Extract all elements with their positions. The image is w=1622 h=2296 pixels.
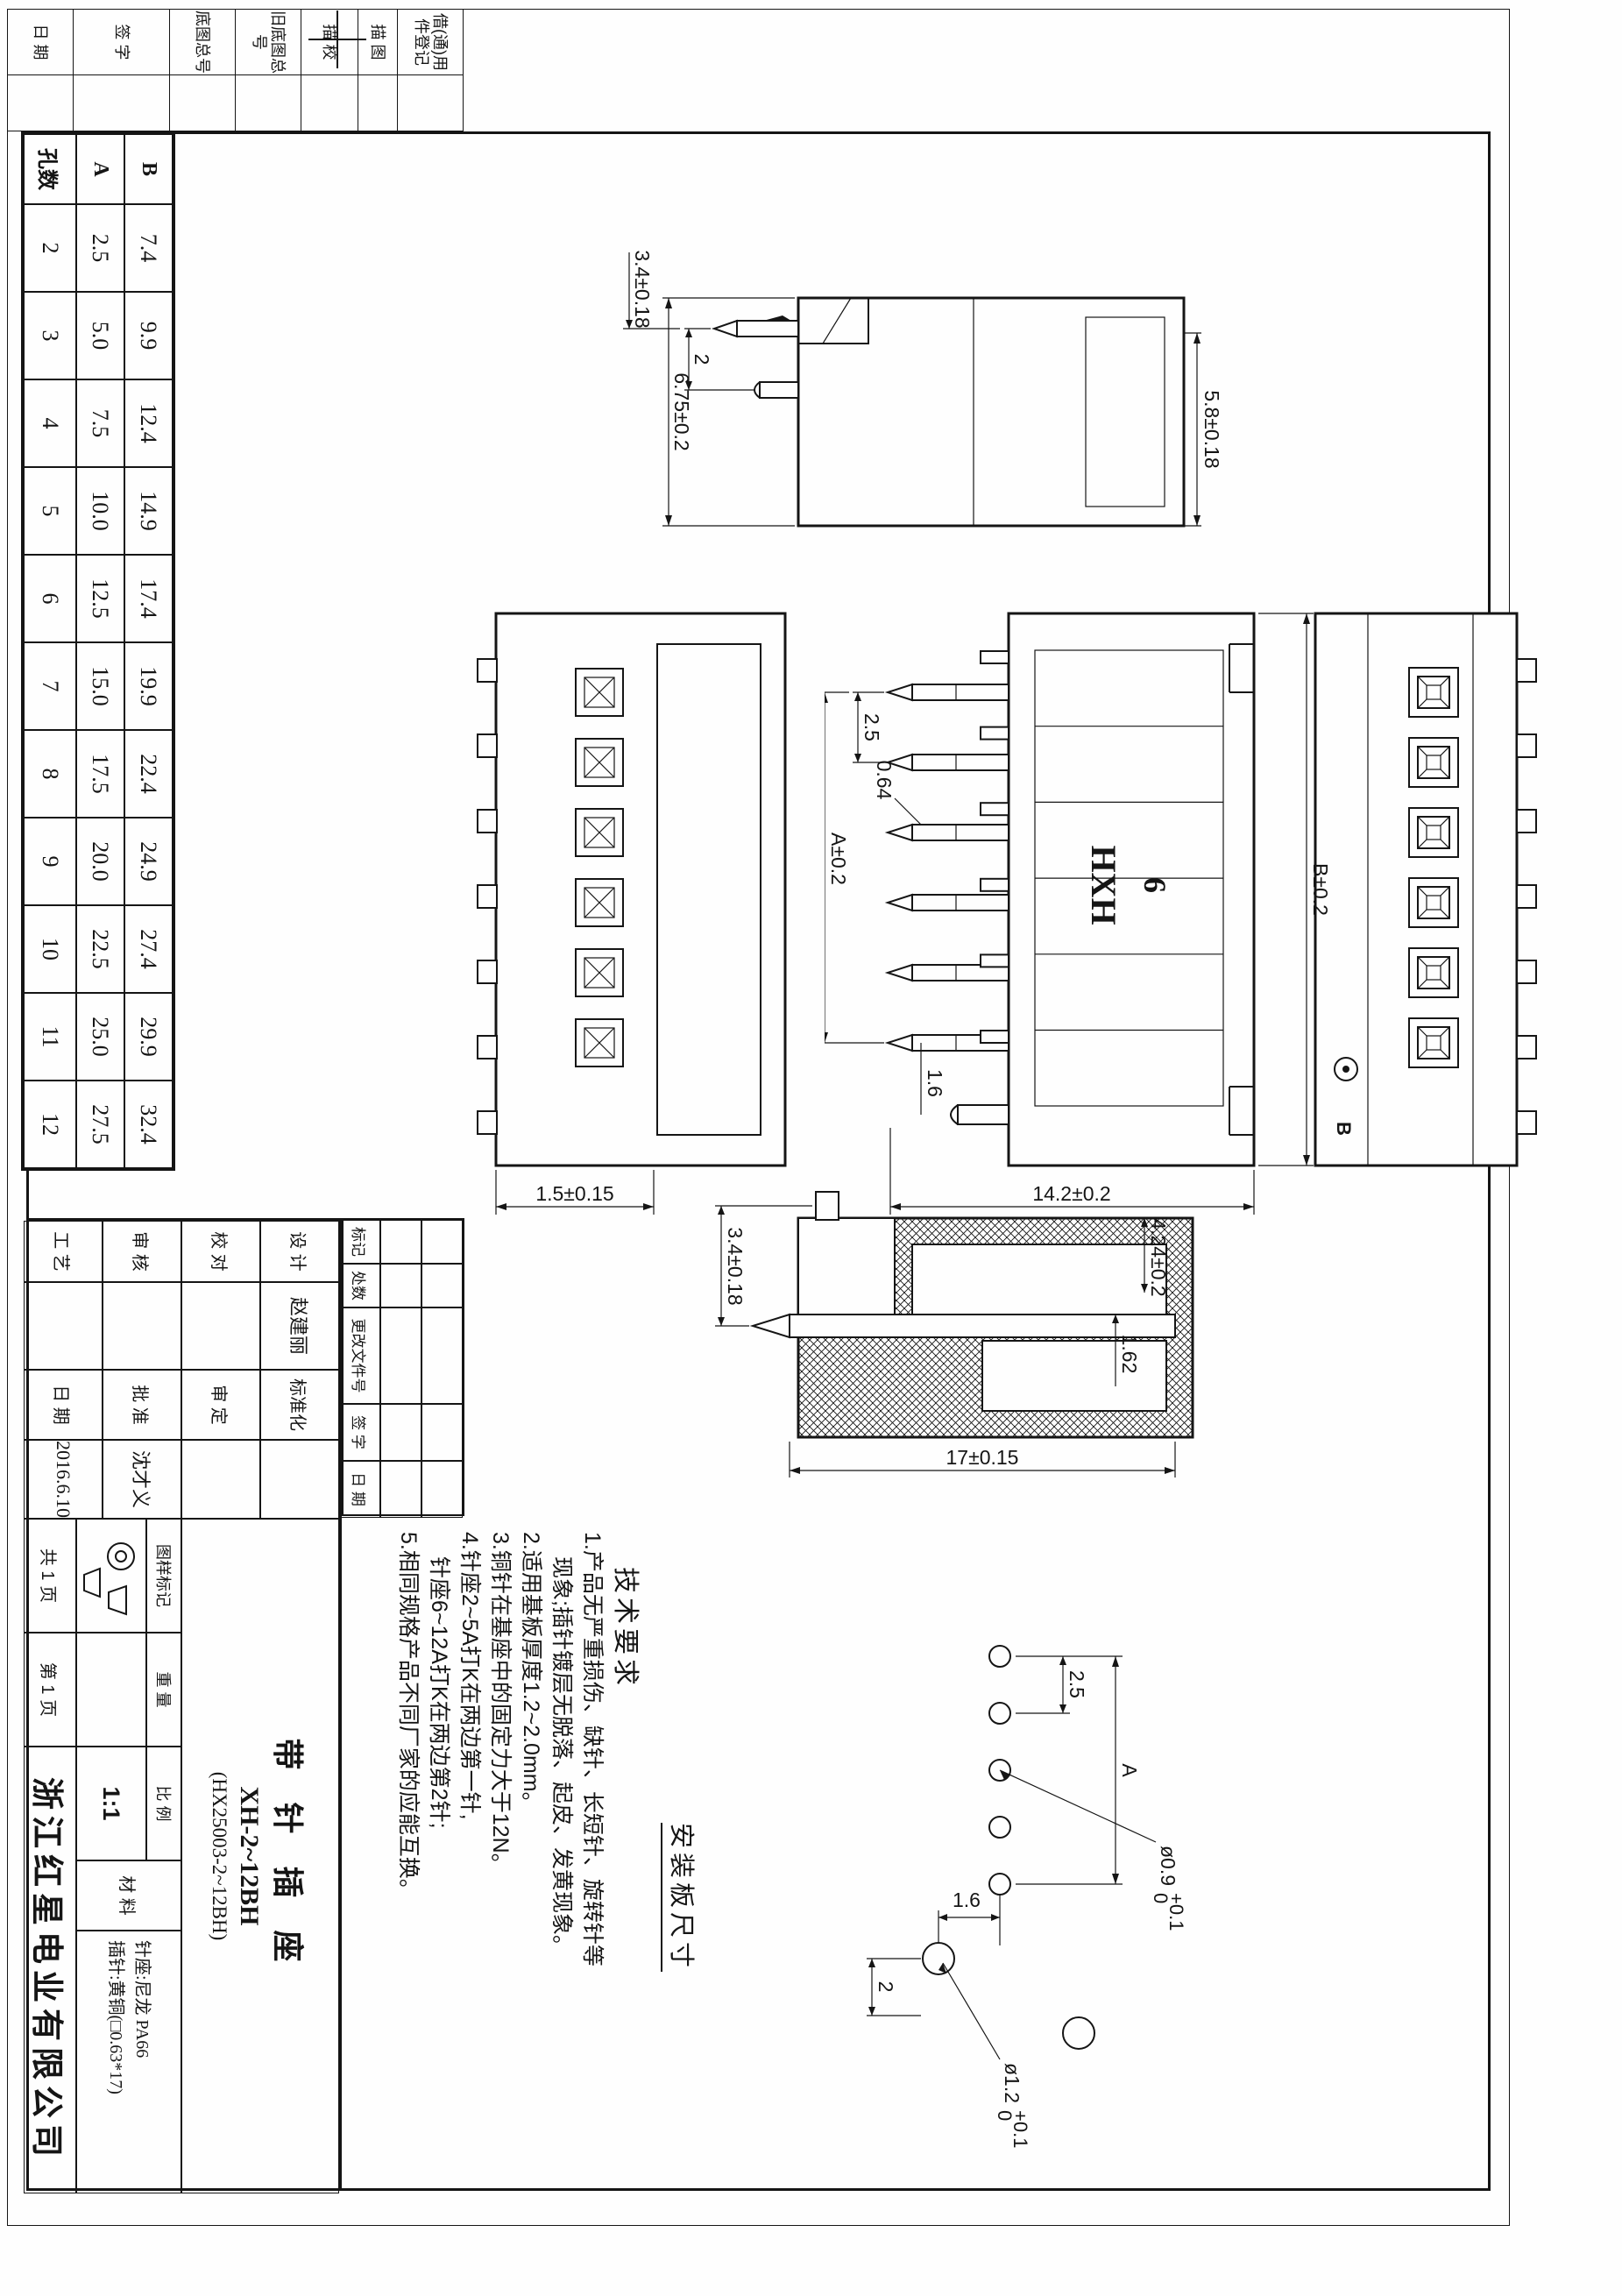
pin-table-cell: 4 bbox=[24, 379, 76, 467]
pin-table-cell: 5 bbox=[24, 467, 76, 555]
pin-table-cell: 15.0 bbox=[76, 642, 124, 730]
material-content: 针座:尼龙 PA66 插针:黄铜(□0.63*17) bbox=[76, 1931, 181, 2193]
dim-lip: 1.62 bbox=[1118, 1335, 1141, 1374]
pin-table-cell: 10.0 bbox=[76, 467, 124, 555]
margin-cell: 旧底图总号 bbox=[235, 10, 301, 131]
dim-height: 6.75±0.2 bbox=[670, 372, 693, 450]
company-name: 浙江红星电业有限公司 bbox=[24, 1747, 76, 2193]
blank-cell bbox=[24, 1282, 103, 1370]
revision-blank bbox=[421, 1307, 463, 1404]
date-value: 2016.6.10 bbox=[24, 1440, 103, 1519]
weight-value bbox=[76, 1633, 146, 1747]
mating-face-tabs bbox=[478, 659, 497, 1134]
binding-margin-strip: 借(通)用件登记 描 图 描 校 旧底图总号 底图总号 签 字 日 期 bbox=[7, 9, 464, 131]
pin-table-cell: 10 bbox=[24, 905, 76, 993]
review-label: 审 核 bbox=[103, 1221, 181, 1282]
pin-table-cell: 20.0 bbox=[76, 818, 124, 905]
revision-blank bbox=[380, 1220, 421, 1264]
scale-value: 1:1 bbox=[76, 1747, 146, 1860]
callout-small-tol-dn: 0 bbox=[1150, 1893, 1172, 1903]
pin-table-cell: 22.5 bbox=[76, 905, 124, 993]
margin-blank bbox=[236, 75, 301, 131]
date-label: 日 期 bbox=[24, 1370, 103, 1440]
dim-pitch: 2.5 bbox=[861, 713, 883, 741]
tech-requirement-line: 5.相同规格产品不同厂家的应能互换。 bbox=[393, 1532, 423, 2198]
brand-mark: HXH bbox=[1084, 845, 1123, 925]
mating-face-view: 1.5±0.15 bbox=[470, 596, 820, 1244]
pin-table-cell: 6 bbox=[24, 555, 76, 642]
margin-cell: 底图总号 bbox=[169, 10, 235, 131]
margin-blank bbox=[74, 75, 169, 131]
margin-label: 旧底图总号 bbox=[236, 10, 301, 75]
pin-table-row-header: B bbox=[124, 134, 173, 204]
revision-blank bbox=[421, 1404, 463, 1461]
back-view-tabs bbox=[1517, 659, 1536, 1134]
pin-table-cell: 9 bbox=[24, 818, 76, 905]
margin-label: 底图总号 bbox=[170, 10, 235, 75]
projection-symbol bbox=[81, 1523, 142, 1628]
revision-header-date: 日 期 bbox=[340, 1461, 380, 1518]
tech-requirement-line: 现象;插针镀层无脱落、起皮、发黄现象。 bbox=[546, 1532, 577, 2198]
pin-count-table: B7.49.912.414.917.419.922.424.927.429.93… bbox=[21, 131, 175, 1171]
callout-big-tol-dn: 0 bbox=[994, 2110, 1016, 2121]
design-name: 赵建丽 bbox=[260, 1282, 339, 1370]
dim-slot: 5.8±0.18 bbox=[1201, 390, 1223, 468]
margin-cell: 描 图 bbox=[358, 10, 397, 131]
scale-header: 比 例 bbox=[146, 1747, 181, 1860]
dim-peg: 1.5±0.15 bbox=[535, 1182, 613, 1205]
tech-requirements-title: 技术要求 bbox=[609, 1567, 648, 1690]
dim-end: 1.6 bbox=[924, 1069, 946, 1097]
tech-requirement-line: 1.产品无严重损伤、缺针、长短针、旋转针等 bbox=[577, 1532, 607, 2198]
material-line-housing: 针座:尼龙 PA66 bbox=[129, 1940, 155, 2058]
revision-header-count: 处数 bbox=[340, 1264, 380, 1307]
approve-label: 批 准 bbox=[103, 1370, 181, 1440]
tech-requirements-list: 1.产品无严重损伤、缺针、长短针、旋转针等现象;插针镀层无脱落、起皮、发黄现象。… bbox=[393, 1532, 607, 2198]
margin-blank bbox=[301, 75, 358, 131]
dim-offset-y: 1.6 bbox=[953, 1889, 981, 1911]
margin-cell: 借(通)用件登记 bbox=[397, 10, 463, 131]
pin-table-row-header: 孔数 bbox=[24, 134, 76, 204]
dim-pin-gap: 2 bbox=[691, 354, 713, 365]
pin-table-cell: 9.9 bbox=[124, 292, 173, 379]
process-label: 工 艺 bbox=[24, 1221, 103, 1282]
centering-mark bbox=[308, 39, 366, 40]
pin-table-cell: 12.5 bbox=[76, 555, 124, 642]
design-label: 设 计 bbox=[260, 1221, 339, 1282]
margin-label: 描 校 bbox=[301, 10, 358, 75]
dim-hole-pitch: 2.5 bbox=[1066, 1670, 1088, 1698]
revision-header-mark: 标记 bbox=[340, 1220, 380, 1264]
pin-table-row-header: A bbox=[76, 134, 124, 204]
pin-table-cell: 2 bbox=[24, 204, 76, 292]
revision-header-docno: 更改文件号 bbox=[340, 1307, 380, 1404]
dim-length17: 17±0.15 bbox=[946, 1446, 1019, 1469]
dim-pin-width: 0.64 bbox=[873, 761, 896, 800]
tech-requirement-line: 3.铜针在基座中的固定力大于12N。 bbox=[485, 1532, 515, 2198]
product-name: 带 针 插 座 bbox=[267, 1738, 313, 1974]
margin-cell: 描 校 bbox=[301, 10, 358, 131]
pages-current: 第 1 页 bbox=[24, 1633, 76, 1747]
front-view: B±0.2 6 HXH 2.5 A±0.2 0.64 1.6 14.2±0.2 bbox=[825, 596, 1333, 1244]
margin-cell: 签 字 bbox=[73, 10, 169, 131]
blank-cell bbox=[103, 1282, 181, 1370]
product-model: XH-2~12BH bbox=[234, 1787, 264, 1926]
blank-cell bbox=[260, 1440, 339, 1519]
standardization-label: 标准化 bbox=[260, 1370, 339, 1440]
material-line-pin: 插针:黄铜(□0.63*17) bbox=[103, 1940, 129, 2094]
revision-blank bbox=[380, 1307, 421, 1404]
pin-table-cell: 17.5 bbox=[76, 730, 124, 818]
pin-table-cell: 24.9 bbox=[124, 818, 173, 905]
revision-blank bbox=[421, 1461, 463, 1518]
pin-table-cell: 27.5 bbox=[76, 1081, 124, 1168]
pin-table-cell: 27.4 bbox=[124, 905, 173, 993]
drawing-sheet: 借(通)用件登记 描 图 描 校 旧底图总号 底图总号 签 字 日 期 B7.4… bbox=[0, 0, 1622, 2296]
pin-table-cell: 25.0 bbox=[76, 993, 124, 1081]
install-panel-drawing: 2.5 A ø0.9 +0.1 0 ø1.2 +0.1 0 1.6 2 bbox=[825, 1595, 1210, 2173]
product-code: (HX25003-2~12BH) bbox=[208, 1772, 230, 1941]
revision-blank bbox=[380, 1461, 421, 1518]
position-count: 6 bbox=[1137, 877, 1172, 893]
pin-table-cell: 8 bbox=[24, 730, 76, 818]
dim-offset-x: 2 bbox=[875, 1981, 897, 1993]
tech-requirement-line: 针座6~12A打K在两边第2针; bbox=[423, 1532, 454, 2198]
mark-header: 图样标记 bbox=[146, 1519, 181, 1633]
approve-name: 沈才义 bbox=[103, 1440, 181, 1519]
margin-blank bbox=[358, 75, 397, 131]
pin-table-cell: 17.4 bbox=[124, 555, 173, 642]
revision-blank bbox=[421, 1220, 463, 1264]
side-profile-view: 5.8±0.18 2 6.75±0.2 3.4±0.18 bbox=[606, 237, 1236, 578]
pin-table-cell: 19.9 bbox=[124, 642, 173, 730]
pin-table-cell: 7 bbox=[24, 642, 76, 730]
margin-label: 签 字 bbox=[74, 10, 169, 75]
pins bbox=[888, 651, 1009, 1119]
pin-table-cell: 12 bbox=[24, 1081, 76, 1168]
margin-blank bbox=[398, 75, 463, 131]
pin-table-cell: 22.4 bbox=[124, 730, 173, 818]
pin-table-cell: 12.4 bbox=[124, 379, 173, 467]
tech-requirement-line: 4.针座2~5A打K在两边第一针, bbox=[454, 1532, 485, 2198]
margin-blank bbox=[170, 75, 235, 131]
pin-table-cell: 32.4 bbox=[124, 1081, 173, 1168]
pin-table-cell: 5.0 bbox=[76, 292, 124, 379]
callout-big-hole: ø1.2 bbox=[1001, 2063, 1023, 2103]
pin-table-cell: 3 bbox=[24, 292, 76, 379]
signature-grid: 设 计 赵建丽 标准化 校 对 审 定 审 核 批 准 沈才义 工 艺 日 期 … bbox=[24, 1221, 339, 1519]
margin-label: 描 图 bbox=[358, 10, 397, 75]
dim-span-a: A±0.2 bbox=[827, 833, 850, 885]
dim-pin-offset: 3.4±0.18 bbox=[631, 250, 654, 328]
pages-total: 共 1 页 bbox=[24, 1519, 76, 1633]
section-label-b: B bbox=[1333, 1122, 1355, 1136]
dim-depth: 4.24±0.2 bbox=[1147, 1218, 1170, 1296]
blank-cell bbox=[181, 1282, 260, 1370]
pin-table-cell: 7.5 bbox=[76, 379, 124, 467]
install-panel-title: 安装板尺寸 bbox=[661, 1823, 702, 1972]
check-label: 校 对 bbox=[181, 1221, 260, 1282]
pin-table-cell: 7.4 bbox=[124, 204, 173, 292]
projection-symbol-cell bbox=[76, 1519, 146, 1633]
revision-blank bbox=[380, 1404, 421, 1461]
weight-header: 重 量 bbox=[146, 1633, 181, 1747]
revision-header-sign: 签 字 bbox=[340, 1404, 380, 1461]
margin-cell: 日 期 bbox=[8, 10, 73, 131]
pin-table-cell: 29.9 bbox=[124, 993, 173, 1081]
revision-table: 标记 处数 更改文件号 签 字 日 期 bbox=[342, 1218, 464, 1516]
approve2-label: 审 定 bbox=[181, 1370, 260, 1440]
margin-label: 借(通)用件登记 bbox=[398, 10, 463, 75]
revision-blank bbox=[421, 1264, 463, 1307]
margin-blank bbox=[8, 75, 73, 131]
margin-label: 日 期 bbox=[8, 10, 73, 75]
revision-blank bbox=[380, 1264, 421, 1307]
blank-cell bbox=[181, 1440, 260, 1519]
scanned-drawing-page: { "margin_strip": { "labels": ["借(通)用件登记… bbox=[0, 0, 1622, 2296]
dim-length-b: B±0.2 bbox=[1309, 863, 1332, 916]
tech-requirement-line: 2.适用基板厚度1.2~2.0mm。 bbox=[515, 1532, 546, 2198]
pin-table-cell: 14.9 bbox=[124, 467, 173, 555]
pin-table-cell: 2.5 bbox=[76, 204, 124, 292]
pin-table-cell: 11 bbox=[24, 993, 76, 1081]
dim-pin-out: 3.4±0.18 bbox=[724, 1227, 747, 1305]
product-cell: 带 针 插 座 XH-2~12BH (HX25003-2~12BH) bbox=[181, 1519, 339, 2193]
title-block: 设 计 赵建丽 标准化 校 对 审 定 审 核 批 准 沈才义 工 艺 日 期 … bbox=[26, 1218, 342, 2191]
section-view: 4.24±0.2 1.62 17±0.15 3.4±0.18 bbox=[684, 1174, 1228, 1490]
dim-hole-span: A bbox=[1118, 1763, 1141, 1777]
material-label: 材 料 bbox=[76, 1860, 181, 1931]
callout-small-hole: ø0.9 bbox=[1157, 1846, 1179, 1886]
